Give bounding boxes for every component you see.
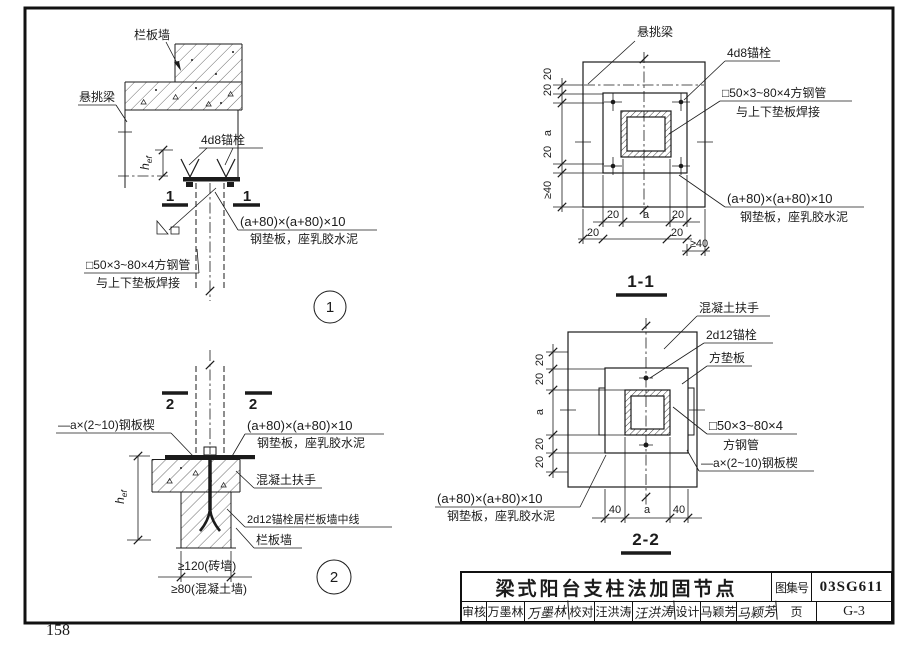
svg-text:20: 20 — [534, 354, 546, 366]
tube-label-line1: □50×3~80×4方钢管 — [86, 257, 190, 272]
atlas-number-label: 图集号 — [772, 573, 812, 601]
svg-text:20: 20 — [672, 209, 684, 221]
square-tube — [621, 111, 671, 157]
page-number-value: G-3 — [817, 602, 891, 621]
plate-label-line2: 钢垫板，座乳胶水泥 — [250, 231, 358, 246]
svg-text:20: 20 — [542, 146, 554, 158]
svg-text:20: 20 — [542, 68, 554, 80]
svg-text:20: 20 — [534, 438, 546, 450]
hef-dimension-label: hef — [138, 154, 154, 169]
section-title-2-2: 2-2 — [632, 530, 660, 549]
svg-text:2: 2 — [330, 569, 338, 586]
section-mark-2-right: 2 — [249, 396, 257, 413]
svg-text:20: 20 — [542, 84, 554, 96]
reviewer-role-label: 审核 — [462, 602, 487, 621]
checker-name: 汪洪涛 — [595, 602, 633, 621]
wedge-label: —a×(2~10)钢板楔 — [58, 418, 155, 432]
title-block: 梁式阳台支柱法加固节点 图集号 03SG611 审核 万墨林 万墨林 校对 汪洪… — [460, 571, 893, 623]
plate-label-line2: 钢垫板，座乳胶水泥 — [447, 508, 555, 523]
svg-text:20: 20 — [587, 227, 599, 239]
parapet-wall-hatch — [175, 44, 242, 82]
wall-dim-brick: ≥120(砖墙) — [178, 558, 237, 573]
steel-wedge-left — [599, 388, 605, 435]
cantilever-beam-label: 悬挑梁 — [79, 89, 115, 104]
svg-text:20: 20 — [534, 456, 546, 468]
checker-signature: 汪洪涛 — [632, 601, 675, 623]
reviewer-name: 万墨林 — [487, 602, 525, 621]
designer-role-label: 设计 — [675, 602, 701, 621]
designer-signature: 马颖芳 — [736, 601, 777, 623]
section-title-1-1: 1-1 — [627, 272, 655, 291]
plate-label-line1: (a+80)×(a+80)×10 — [727, 191, 833, 206]
anchor-bolt-marks — [604, 93, 690, 175]
tube-label-line1: □50×3~80×4 — [709, 418, 783, 433]
designer-name: 马颖芳 — [701, 602, 737, 621]
svg-text:20: 20 — [534, 373, 546, 385]
plate-label-line2: 钢垫板，座乳胶水泥 — [740, 209, 848, 224]
anchor-label: 2d12锚栓 — [706, 327, 757, 342]
svg-text:20: 20 — [671, 227, 683, 239]
reviewer-signature: 万墨林 — [524, 600, 569, 622]
detail-2-elevation: 2 2 hef —a×(2~10)钢板楔 (a+80)×(a+80)×10 钢垫… — [56, 350, 392, 596]
atlas-sheet: hef 1 1 栏板墙 悬挑梁 4d8锚栓 (a+80)×(a+80)×10 钢… — [0, 0, 910, 654]
handrail-outline — [568, 332, 697, 487]
svg-text:≥40: ≥40 — [542, 181, 554, 199]
beam-hatch — [125, 82, 242, 110]
sheet-page-number: 158 — [46, 622, 70, 640]
section-mark-1-right: 1 — [243, 188, 251, 205]
square-tube — [625, 390, 670, 435]
parapet-wall-label: 栏板墙 — [256, 532, 292, 547]
svg-text:40: 40 — [673, 504, 685, 516]
anchor-label: 4d8锚栓 — [727, 45, 771, 60]
pad-plate — [605, 368, 688, 453]
checker-role-label: 校对 — [569, 602, 595, 621]
section-1-1-plan: 20 20 a 20 ≥40 20 a 20 20 20 ≥40 悬挑梁 4d8… — [542, 24, 864, 295]
plate-label-line1: (a+80)×(a+80)×10 — [437, 491, 543, 506]
handrail-label: 混凝土扶手 — [256, 472, 316, 487]
parapet-wall-label: 栏板墙 — [134, 27, 170, 42]
plate-label-line2: 钢垫板，座乳胶水泥 — [257, 435, 365, 450]
svg-text:1: 1 — [326, 299, 334, 316]
cantilever-beam-label: 悬挑梁 — [637, 24, 673, 39]
page-label: 页 — [777, 602, 817, 621]
plate-label-line1: (a+80)×(a+80)×10 — [240, 214, 346, 229]
svg-text:≥40: ≥40 — [690, 238, 708, 250]
svg-text:a: a — [534, 408, 546, 415]
pad-plate-label: 方垫板 — [709, 350, 745, 365]
pad-plate — [603, 93, 687, 173]
svg-text:20: 20 — [607, 209, 619, 221]
tube-label-line1: □50×3~80×4方钢管 — [722, 85, 826, 100]
steel-plate — [183, 177, 240, 182]
handrail-label: 混凝土扶手 — [699, 300, 759, 315]
wedge-label: —a×(2~10)钢板楔 — [701, 456, 798, 470]
tube-label-line2: 与上下垫板焊接 — [736, 104, 820, 119]
svg-text:40: 40 — [609, 504, 621, 516]
steel-wedge-right — [688, 388, 694, 435]
atlas-number-value: 03SG611 — [812, 573, 891, 601]
title-block-row-2: 审核 万墨林 万墨林 校对 汪洪涛 汪洪涛 设计 马颖芳 马颖芳 页 G-3 — [462, 602, 891, 621]
drawing-canvas: hef 1 1 栏板墙 悬挑梁 4d8锚栓 (a+80)×(a+80)×10 钢… — [0, 0, 910, 654]
svg-text:a: a — [643, 209, 650, 221]
hef-dimension-label: hef — [113, 488, 129, 503]
anchor-label: 2d12锚栓居栏板墙中线 — [247, 512, 359, 526]
section-2-2-plan: 20 20 a 20 20 40 a 40 混凝土扶手 2d12锚栓 方垫板 □… — [435, 300, 814, 553]
tube-label-line2: 方钢管 — [723, 437, 759, 452]
svg-text:a: a — [542, 129, 554, 136]
svg-text:a: a — [644, 504, 651, 516]
section-mark-1-left: 1 — [166, 188, 174, 205]
title-block-row-1: 梁式阳台支柱法加固节点 图集号 03SG611 — [462, 573, 891, 602]
weld-symbol-icon — [157, 221, 168, 234]
wall-dim-concrete: ≥80(混凝土墙) — [171, 581, 247, 596]
section-mark-2-left: 2 — [166, 396, 174, 413]
detail-1-elevation: hef 1 1 栏板墙 悬挑梁 4d8锚栓 (a+80)×(a+80)×10 钢… — [78, 27, 377, 323]
plate-label-line1: (a+80)×(a+80)×10 — [247, 418, 353, 433]
drawing-title: 梁式阳台支柱法加固节点 — [462, 573, 772, 601]
handrail-hatch — [152, 460, 240, 493]
tube-label-line2: 与上下垫板焊接 — [96, 275, 180, 290]
anchor-label: 4d8锚栓 — [201, 132, 245, 147]
